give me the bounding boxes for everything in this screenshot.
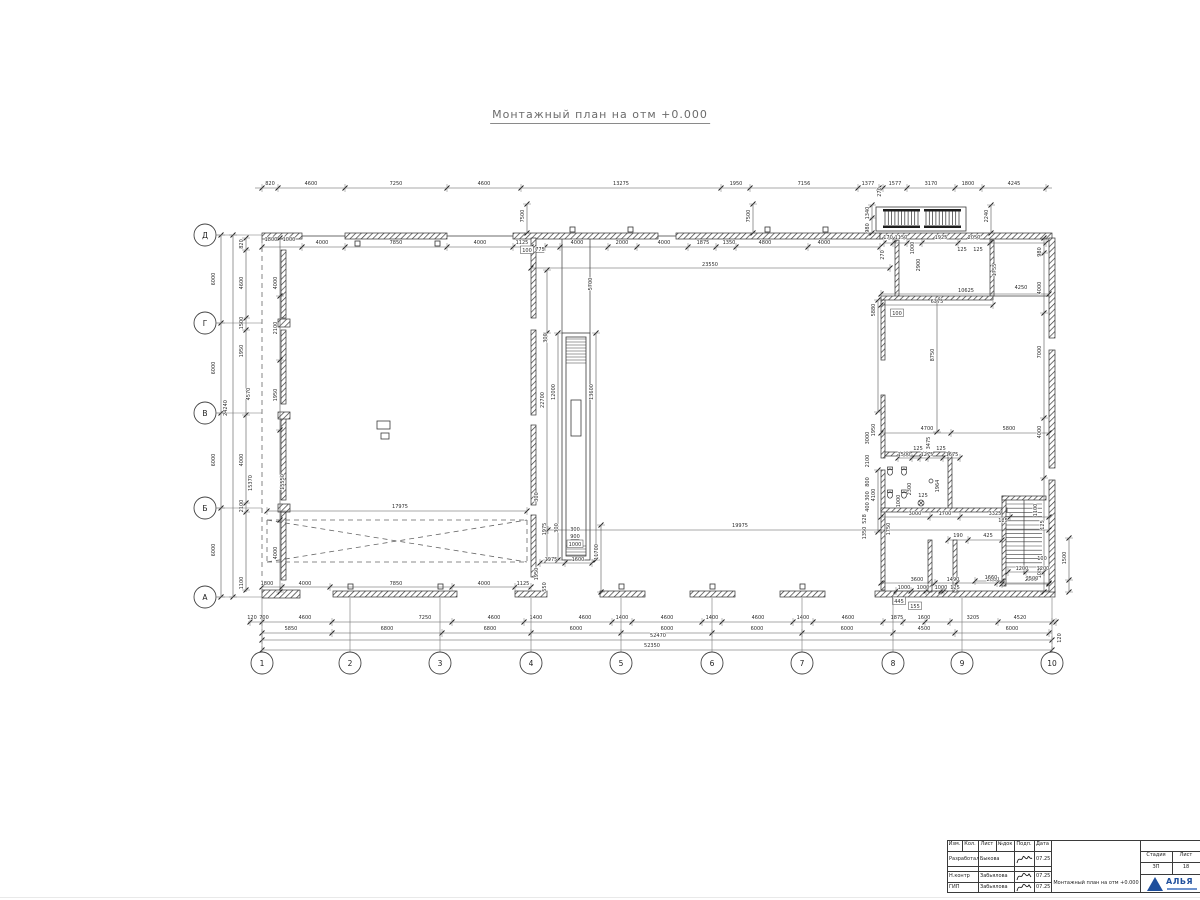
dim-label: 17975 <box>392 504 408 510</box>
dim-label: 1400 <box>530 615 543 621</box>
dim-label: 3475 <box>926 437 932 450</box>
dim-label: 125 <box>973 247 983 253</box>
dim-label: 1755 <box>992 264 998 277</box>
dim-label: 270 <box>880 250 886 260</box>
tb-header-podp: Подп. <box>1014 842 1034 847</box>
page-edge-rule <box>0 897 1200 898</box>
axis-bubble-label: 4 <box>529 659 534 668</box>
axis-bubble-label: 10 <box>1047 659 1057 668</box>
dim-label: 4000 <box>478 581 491 587</box>
dim-label: 300 <box>570 527 580 533</box>
dim-label: 1925 <box>935 235 948 241</box>
wall-segment <box>1002 496 1046 500</box>
wall-segment <box>948 452 952 510</box>
tb-doc-title: Монтажный план на отм +0.000 <box>1052 874 1140 892</box>
dim-label: 4000 <box>1037 426 1043 439</box>
dim-label: 1275 <box>921 452 934 458</box>
dim-label: 1200 <box>1037 566 1050 572</box>
dim-label: 1950 <box>730 181 743 187</box>
column-mark <box>355 241 360 246</box>
dim-label: 820 <box>239 239 245 249</box>
dim-label: 1800 <box>962 181 975 187</box>
dim-label: 6800 <box>484 626 497 632</box>
dim-label: 4600 <box>239 277 245 290</box>
axis-bubble-label: 5 <box>619 659 624 668</box>
dim-label: 1000 <box>910 242 916 255</box>
wall-segment <box>345 233 447 239</box>
sink-icon <box>929 479 933 483</box>
dim-label: 15370 <box>248 475 254 491</box>
tb-sheet-label: Лист <box>1172 853 1200 858</box>
dim-label: 2900 <box>916 259 922 272</box>
wall-segment <box>885 452 951 456</box>
dim-label: 4000 <box>273 277 279 290</box>
dim-label: 125 <box>950 585 960 591</box>
dim-label: 3205 <box>967 615 980 621</box>
dim-label: 1964 <box>935 480 941 493</box>
dim-label: 4000 <box>658 240 671 246</box>
dim-label: 1000 <box>935 585 948 591</box>
wall-segment <box>1002 496 1006 586</box>
dim-label: 6000 <box>661 626 674 632</box>
dim-label: 1750 <box>886 523 892 536</box>
dim-label: 1950 <box>273 389 279 402</box>
wall-segment <box>690 591 735 597</box>
axis-bubble-label: 2 <box>348 659 353 668</box>
dim-label: 1700 <box>939 511 952 517</box>
tb-name-zabyalova-2: Забьялова <box>980 885 1008 890</box>
column-mark <box>619 584 624 589</box>
dim-label: 300 <box>534 492 540 502</box>
dim-label: 52470 <box>650 633 666 639</box>
dim-label: 4570 <box>246 388 252 401</box>
wall-segment <box>281 330 286 404</box>
dim-label: 7156 <box>798 181 811 187</box>
dim-label: 6375 <box>931 299 944 305</box>
dim-label: 300 <box>554 523 560 533</box>
dim-label: 155 <box>910 604 920 610</box>
dim-label: 425 <box>983 533 993 539</box>
dim-label: 5850 <box>285 626 298 632</box>
tb-name-zabyalova-1: Забьялова <box>980 874 1008 879</box>
axis-bubble-label: 3 <box>438 659 443 668</box>
tb-stage-label: Стадия <box>1140 853 1172 858</box>
dim-label: 270 <box>877 187 883 197</box>
dim-label: 1800 <box>261 581 274 587</box>
tb-stage-value: ЗП <box>1140 865 1172 870</box>
dim-label: 125 <box>998 518 1008 524</box>
stair-stringer <box>883 226 920 229</box>
dim-label: 11700 <box>594 544 600 560</box>
dim-label: 125 <box>936 446 946 452</box>
dim-label: 1600 <box>572 557 585 563</box>
dim-label: 8750 <box>930 349 936 362</box>
dim-label: 6000 <box>211 273 217 286</box>
dim-label: 23550 <box>702 262 718 268</box>
column-mark <box>348 584 353 589</box>
dim-label: 4520 <box>1014 615 1027 621</box>
dim-label: 100 <box>1037 556 1047 562</box>
dim-label: 100 <box>892 311 902 317</box>
wall-segment <box>875 591 1055 597</box>
axis-bubble-label: Г <box>203 319 208 328</box>
column-mark <box>628 227 633 232</box>
dim-label: 4500 <box>918 626 931 632</box>
dim-label: 980 <box>1037 247 1043 257</box>
dim-label: 7850 <box>390 240 403 246</box>
column-mark <box>823 227 828 232</box>
dim-label: 1000 <box>283 237 296 243</box>
wall-segment <box>531 330 536 415</box>
dim-label: 4000 <box>316 240 329 246</box>
tb-role-nkontr: Н.контр <box>949 874 970 879</box>
dim-label: 6000 <box>211 454 217 467</box>
dim-label: 5700 <box>588 278 594 291</box>
dim-label: 1340 <box>865 207 871 220</box>
company-logo-text: АЛЬЯ <box>1166 877 1193 886</box>
floor-plan-drawing: 8204600725046001327519507156137727015773… <box>0 0 1200 900</box>
dim-label: 445 <box>894 599 904 605</box>
dim-label: 4700 <box>921 426 934 432</box>
wall-segment <box>1049 480 1055 592</box>
tb-name-bykova: Быкова <box>980 857 999 862</box>
dim-label: 7850 <box>390 581 403 587</box>
wall-segment <box>600 591 645 597</box>
dim-label: 4800 <box>759 240 772 246</box>
dim-label: 13600 <box>589 384 595 400</box>
dim-label: 4000 <box>239 454 245 467</box>
dim-label: 1975 <box>545 557 558 563</box>
dim-label: 1350 <box>723 240 736 246</box>
axis-bubble-label: В <box>202 409 207 418</box>
dim-label: 2000 <box>616 240 629 246</box>
wall-segment <box>281 250 286 318</box>
dim-label: 125 <box>1040 520 1046 530</box>
dim-label: 400 <box>865 502 871 512</box>
equipment-outline <box>377 421 390 429</box>
company-logo-tagline <box>1167 888 1197 890</box>
wall-segment <box>895 240 899 298</box>
dim-label: 4600 <box>488 615 501 621</box>
dim-label: 3000 <box>909 511 922 517</box>
dim-label: 4245 <box>1008 181 1021 187</box>
signature-2 <box>1015 871 1033 882</box>
dim-label: 1577 <box>889 181 902 187</box>
dim-label: 1675 <box>946 452 959 458</box>
dim-label: 1350 <box>862 527 868 540</box>
tb-date-3: 07.25 <box>1036 885 1050 890</box>
dim-label: 1377 <box>862 181 875 187</box>
dim-label: 7250 <box>419 615 432 621</box>
axis-bubble-label: Б <box>202 504 207 513</box>
wall-segment <box>333 591 457 597</box>
dim-label: 2300 <box>907 483 913 496</box>
axis-bubble-label: Д <box>202 231 208 240</box>
column-mark <box>800 584 805 589</box>
dim-label: 2100 <box>239 500 245 513</box>
dim-label: 7250 <box>390 181 403 187</box>
dim-label: 2240 <box>984 210 990 223</box>
dim-label: 4000 <box>818 240 831 246</box>
dim-label: 7500 <box>520 210 526 223</box>
axis-bubble-label: 1 <box>260 659 265 668</box>
equipment-outline <box>571 400 581 436</box>
dim-label: 300 <box>865 491 871 501</box>
dim-label: 1000 <box>896 495 902 508</box>
dim-label: 1125 <box>517 581 530 587</box>
dim-label: 22700 <box>540 392 546 408</box>
dim-label: 2050 <box>968 235 981 241</box>
dim-label: 3325 <box>989 511 1002 517</box>
dim-label: 700 <box>259 615 269 621</box>
dim-label: 120 <box>247 615 257 621</box>
dim-label: 1490 <box>947 577 960 583</box>
dim-label: 528 <box>862 514 868 524</box>
wall-segment <box>881 395 885 458</box>
dim-label: 4600 <box>842 615 855 621</box>
dim-label: 13275 <box>613 181 629 187</box>
dim-label: 4000 <box>474 240 487 246</box>
dim-label: 980 <box>865 223 871 233</box>
dim-label: 1125 <box>516 240 529 246</box>
dim-label: 6000 <box>211 362 217 375</box>
dim-label: 1400 <box>797 615 810 621</box>
dim-label: 1000 <box>898 585 911 591</box>
dim-label: 2100 <box>273 322 279 335</box>
tb-date-2: 07.25 <box>1036 874 1050 879</box>
company-logo-icon <box>1147 877 1163 891</box>
wall-segment <box>1049 238 1055 338</box>
tb-role-razrabotal: Разработал <box>949 857 979 862</box>
dim-label: 2500 <box>1026 576 1039 582</box>
dim-label: 4600 <box>661 615 674 621</box>
dim-label: 1500 <box>898 452 911 458</box>
dim-label: 1950 <box>239 345 245 358</box>
dim-label: 6000 <box>211 544 217 557</box>
dim-label: 1500 <box>1062 552 1068 565</box>
dim-label: 1400 <box>616 615 629 621</box>
dim-label: 24240 <box>223 400 229 416</box>
dim-label: 1975 <box>542 523 548 536</box>
dim-label: 300 <box>543 333 549 343</box>
dim-label: 1000 <box>569 542 582 548</box>
dim-label: 4600 <box>478 181 491 187</box>
dim-label: 4600 <box>299 615 312 621</box>
dim-label: 550 <box>542 582 548 592</box>
dim-label: 3170 <box>925 181 938 187</box>
tb-role-gip: ГИП <box>949 885 960 890</box>
axis-bubble-label: 6 <box>710 659 715 668</box>
dim-label: 10625 <box>958 288 974 294</box>
dim-label: 1875 <box>697 240 710 246</box>
dim-label: 6000 <box>751 626 764 632</box>
dim-label: 12000 <box>551 384 557 400</box>
dim-label: 800 <box>865 477 871 487</box>
axis-bubble-label: 9 <box>960 659 965 668</box>
dim-label: 1600 <box>918 615 931 621</box>
dim-label: 6000 <box>570 626 583 632</box>
stair-stringer <box>924 226 961 229</box>
dim-label: 4000 <box>1037 282 1043 295</box>
dim-label: 7000 <box>1037 346 1043 359</box>
dim-label: 775 <box>535 247 545 253</box>
axis-bubble-label: 8 <box>891 659 896 668</box>
dim-label: 1200 <box>1016 566 1029 572</box>
dim-label: 6800 <box>381 626 394 632</box>
dim-label: 125 <box>957 247 967 253</box>
tb-sheet-value: 18 <box>1172 865 1200 870</box>
dim-label: 6000 <box>1006 626 1019 632</box>
column-mark <box>765 227 770 232</box>
wall-segment <box>281 512 286 580</box>
wall-segment <box>881 300 885 360</box>
drawing-sheet: { "page": { "title": "Монтажный план на … <box>0 0 1200 900</box>
dim-label: 15550 <box>280 474 286 490</box>
tb-header-list: Лист <box>978 842 996 847</box>
dim-label: 4000 <box>299 581 312 587</box>
dim-label: 1800 <box>265 237 278 243</box>
signature-1 <box>1015 853 1033 865</box>
column-mark <box>570 227 575 232</box>
tb-header-ndok: №док <box>996 842 1014 847</box>
dim-label: 3000 <box>865 432 871 445</box>
wall-segment <box>780 591 825 597</box>
dim-label: 4000 <box>571 240 584 246</box>
dim-label: 120 <box>1057 633 1063 643</box>
dim-label: 125 <box>913 446 923 452</box>
tb-header-izm: Изм. <box>947 842 962 847</box>
dim-label: 7500 <box>746 210 752 223</box>
dim-label: 1950 <box>871 424 877 437</box>
dim-label: 4100 <box>871 489 877 502</box>
axis-bubble-label: А <box>202 593 208 602</box>
dim-label: 19975 <box>732 523 748 529</box>
dim-label: 100 <box>522 248 532 254</box>
column-mark <box>438 584 443 589</box>
tb-date-1: 07.25 <box>1036 857 1050 862</box>
dim-label: 1875 <box>891 615 904 621</box>
tb-header-kol: Кол. <box>962 842 978 847</box>
equipment-outline <box>381 433 389 439</box>
axis-bubble-label: 7 <box>800 659 805 668</box>
dim-label: 1100 <box>239 577 245 590</box>
dim-label: 1150 <box>895 235 908 241</box>
dim-label: 1100 <box>1033 504 1039 517</box>
dim-label: 4600 <box>305 181 318 187</box>
column-mark <box>435 241 440 246</box>
dim-label: 52350 <box>644 643 660 649</box>
signature-3 <box>1015 882 1033 893</box>
dim-label: 4600 <box>579 615 592 621</box>
dim-label: 4600 <box>752 615 765 621</box>
dim-label: 900 <box>570 534 580 540</box>
wall-segment <box>1049 350 1055 468</box>
dim-label: 4250 <box>1015 285 1028 291</box>
dim-label: 820 <box>265 181 275 187</box>
dim-label: 3600 <box>911 577 924 583</box>
column-mark <box>710 584 715 589</box>
tb-header-data: Дата <box>1034 842 1051 847</box>
equipment-outline <box>566 337 586 556</box>
dim-label: 125 <box>918 493 928 499</box>
dim-label: 1950 <box>534 568 540 581</box>
dim-label: 6000 <box>841 626 854 632</box>
dim-label: 5880 <box>871 304 877 317</box>
dim-label: 2100 <box>865 455 871 468</box>
dim-label: 1000 <box>917 585 930 591</box>
dim-label: 4000 <box>273 547 279 560</box>
dim-label: 190 <box>953 533 963 539</box>
dim-label: 170 <box>883 235 893 241</box>
wall-segment <box>676 233 880 239</box>
dim-label: 5800 <box>1003 426 1016 432</box>
dim-label: 1660 <box>985 575 998 581</box>
